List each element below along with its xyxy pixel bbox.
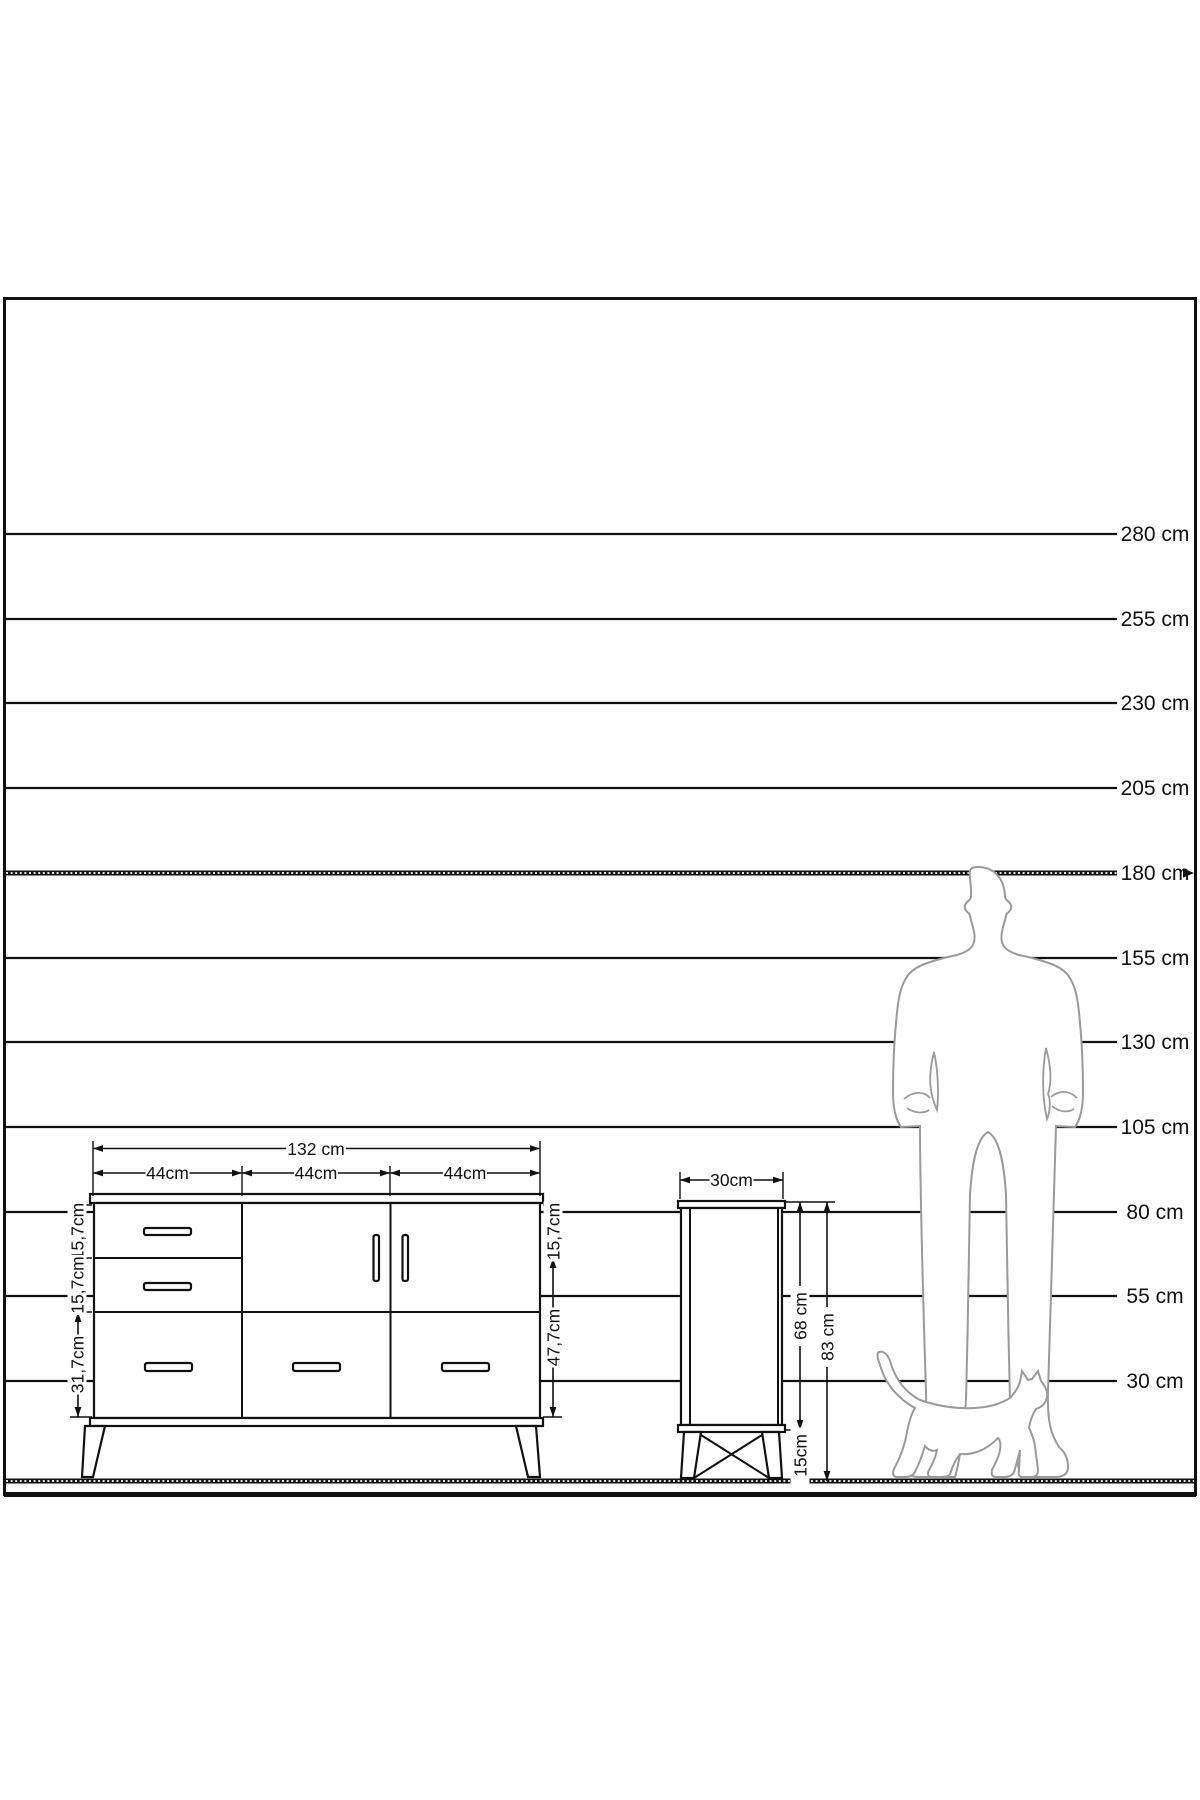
- cabinet-total-height-label: 83 cm: [818, 1313, 838, 1361]
- scale-label-highlighted: 180 cm: [1121, 862, 1190, 885]
- rotated-label: 15,7cm: [544, 1202, 564, 1262]
- sideboard-width-label: 132 cm: [287, 1139, 344, 1159]
- scale-label: 205 cm: [1121, 777, 1190, 800]
- right-height-label: 47,7cm: [544, 1309, 564, 1366]
- scale-label: 255 cm: [1121, 608, 1190, 631]
- sideboard-bottom-panel: [90, 1418, 543, 1426]
- cabinet-leg-brace: [701, 1435, 769, 1478]
- sideboard-leg-right: [516, 1426, 540, 1477]
- scale-label: 130 cm: [1121, 1031, 1190, 1054]
- section-width-label: 44cm: [444, 1163, 487, 1183]
- rotated-label: 15,7cm: [68, 1202, 88, 1262]
- rotated-label: 83 cm: [818, 1307, 838, 1367]
- furniture-scale-diagram: 132 cm 44cm 44cm 44cm 15,7cm 15,7cm 31,7…: [0, 0, 1200, 1800]
- scale-label: 155 cm: [1121, 947, 1190, 970]
- scale-label: 55 cm: [1126, 1285, 1183, 1308]
- section-width-label: 44cm: [295, 1163, 338, 1183]
- section-width-label: 44cm: [146, 1163, 189, 1183]
- cabinet-leg-right: [762, 1432, 782, 1478]
- cabinet-body-height-label: 68 cm: [791, 1292, 811, 1340]
- cabinet-body: [681, 1208, 782, 1425]
- scale-label: 280 cm: [1121, 523, 1190, 546]
- drawer-handle: [442, 1363, 489, 1371]
- drawer-handle: [293, 1363, 340, 1371]
- cabinet-leg-left: [681, 1432, 701, 1478]
- rotated-label: 47,7cm: [544, 1308, 564, 1368]
- cabinet-leg-brace: [694, 1435, 762, 1478]
- rotated-label: 31,7cm: [68, 1335, 88, 1395]
- scale-label: 105 cm: [1121, 1116, 1190, 1139]
- drawer-handle: [144, 1228, 191, 1235]
- left-height-label: 31,7cm: [68, 1336, 88, 1393]
- diagram-canvas: 132 cm 44cm 44cm 44cm 15,7cm 15,7cm 31,7…: [0, 0, 1200, 1800]
- drawer-handle: [145, 1363, 192, 1371]
- cabinet-leg-height-label: 15cm: [791, 1434, 811, 1477]
- sideboard-leg-left: [82, 1426, 105, 1477]
- rotated-label: 68 cm: [791, 1286, 811, 1346]
- height-ruler-labels: 280 cm 255 cm 230 cm 205 cm 180 cm 155 c…: [1117, 519, 1194, 1396]
- cabinet-depth-label: 30cm: [710, 1170, 753, 1190]
- door-handle: [374, 1235, 380, 1281]
- rotated-label: 15,7cm: [68, 1255, 88, 1315]
- side-cabinet: [678, 1201, 785, 1478]
- left-height-label: 15,7cm: [68, 1203, 88, 1260]
- door-handle: [403, 1235, 409, 1281]
- drawer-handle: [144, 1283, 191, 1290]
- scale-label: 80 cm: [1126, 1201, 1183, 1224]
- scale-label: 30 cm: [1126, 1370, 1183, 1393]
- left-height-label: 15,7cm: [68, 1256, 88, 1313]
- scale-label: 230 cm: [1121, 692, 1190, 715]
- right-height-label: 15,7cm: [544, 1203, 564, 1260]
- sideboard-top-panel: [90, 1194, 543, 1203]
- sideboard: [82, 1194, 543, 1477]
- rotated-label: 15cm: [791, 1428, 811, 1484]
